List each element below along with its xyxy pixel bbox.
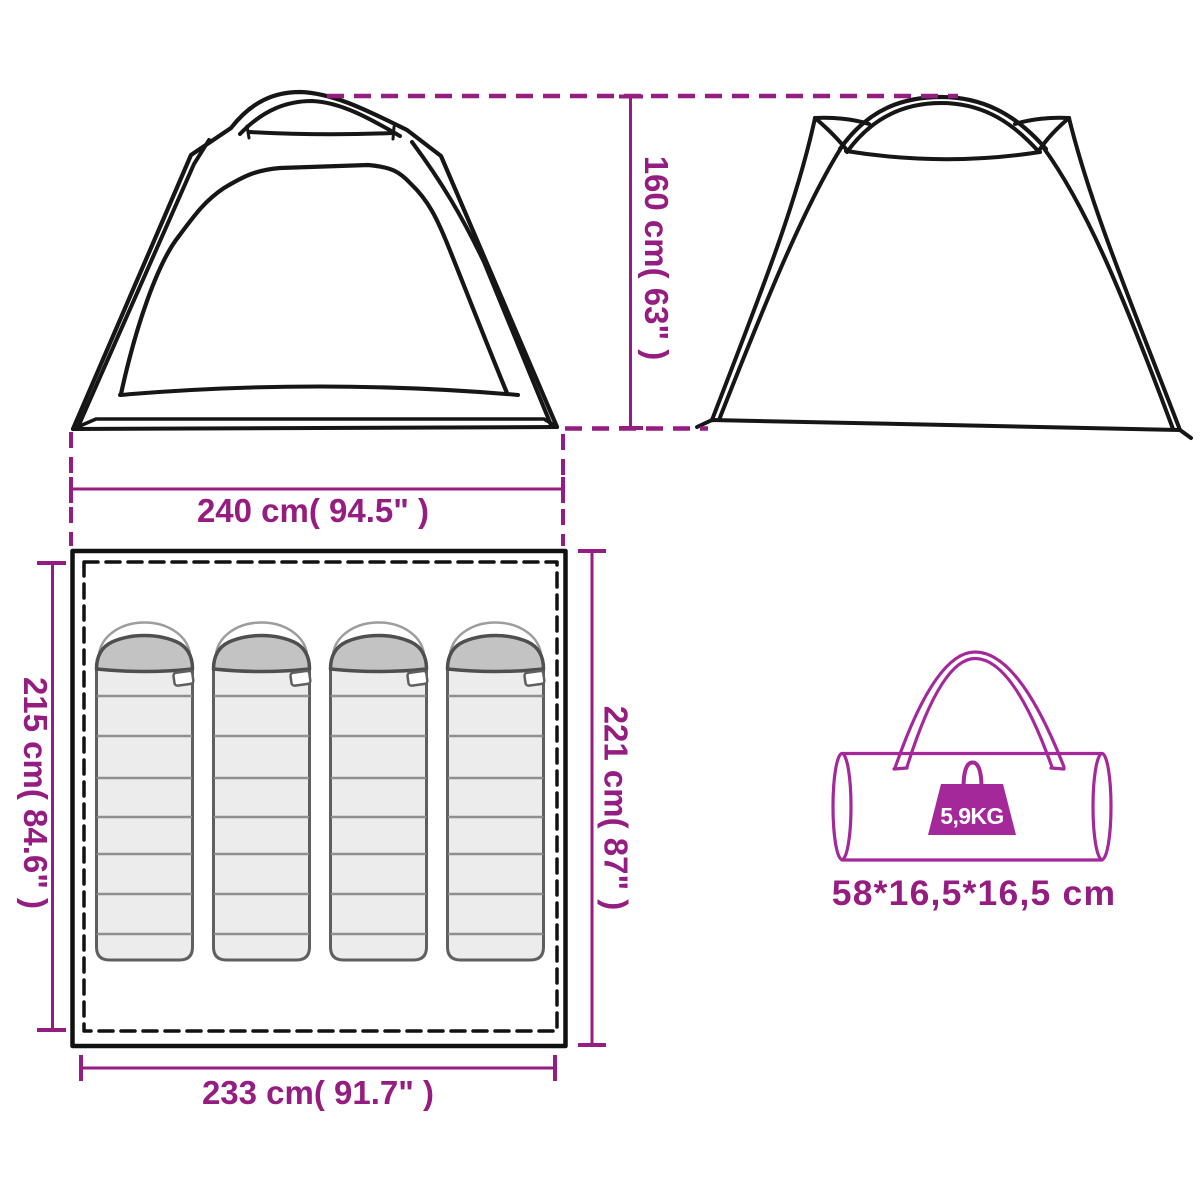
- svg-text:233 cm( 91.7" ): 233 cm( 91.7" ): [202, 1074, 434, 1111]
- svg-text:160 cm( 63" ): 160 cm( 63" ): [638, 156, 675, 361]
- svg-text:58*16,5*16,5 cm: 58*16,5*16,5 cm: [832, 873, 1116, 913]
- svg-text:240 cm( 94.5" ): 240 cm( 94.5" ): [197, 492, 429, 529]
- svg-text:215 cm( 84.6" ): 215 cm( 84.6" ): [17, 677, 54, 909]
- svg-text:221 cm( 87" ): 221 cm( 87" ): [598, 706, 635, 911]
- svg-text:5,9KG: 5,9KG: [940, 803, 1003, 829]
